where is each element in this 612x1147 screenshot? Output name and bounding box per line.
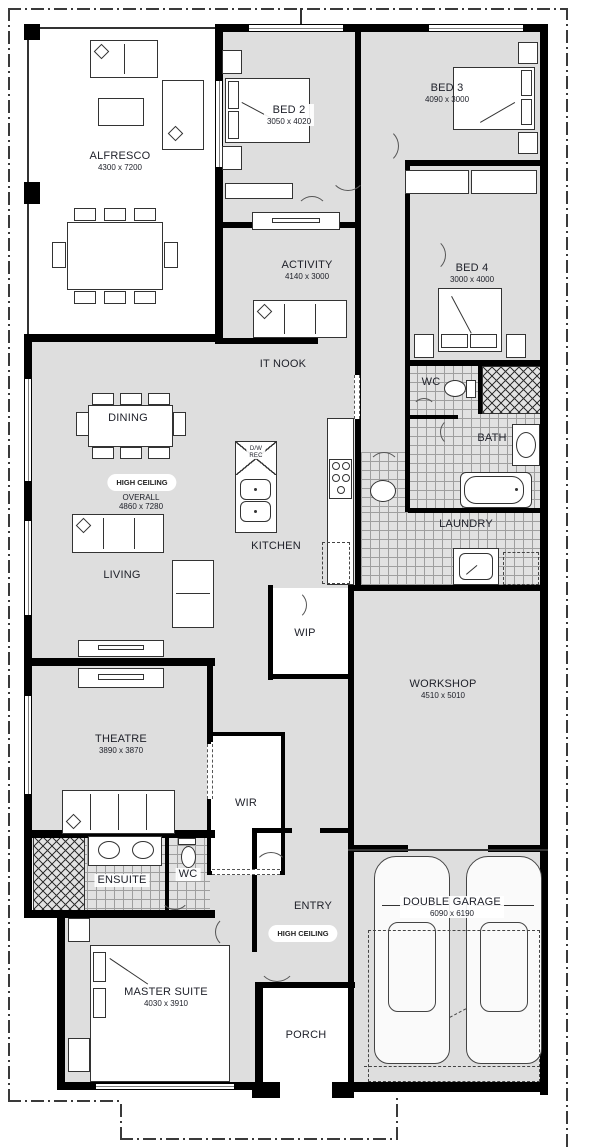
room-label-wip: WIP xyxy=(294,627,315,640)
high-ceiling-pill-entry: HIGH CEILING xyxy=(268,925,337,942)
boundary-right xyxy=(566,8,568,1147)
wall-bed4-bottom xyxy=(405,360,548,366)
boundary-left xyxy=(8,8,10,1102)
chair xyxy=(134,208,156,221)
room-label-activity: ACTIVITY4140 x 3000 xyxy=(281,259,332,281)
chair xyxy=(52,242,66,268)
window-theatre xyxy=(24,695,32,795)
pillow xyxy=(441,334,468,348)
wall-workshop-top xyxy=(348,585,548,591)
pillow xyxy=(470,334,497,348)
cabinet-slot xyxy=(272,218,320,223)
chair xyxy=(148,447,170,459)
bedside-table xyxy=(222,50,242,74)
room-label-kitchen: KITCHEN xyxy=(251,540,301,553)
boundary-bottom-1 xyxy=(8,1100,122,1102)
chair xyxy=(134,291,156,304)
room-label-bed3: BED 34090 x 3000 xyxy=(425,82,469,104)
sofa-line xyxy=(284,304,285,334)
door-arc-bath xyxy=(440,418,468,446)
wall-porch-top xyxy=(255,982,355,988)
fridge-recess xyxy=(322,542,350,584)
armchair-line xyxy=(176,593,210,594)
chair xyxy=(76,412,89,436)
bath-drain xyxy=(515,488,518,491)
alfresco-armchair xyxy=(162,80,204,150)
room-label-bed4: BED 43000 x 4000 xyxy=(450,262,494,284)
alfresco-sofa-line xyxy=(124,44,125,74)
room-label-entry: ENTRY xyxy=(294,900,332,913)
wall-garage-left xyxy=(348,585,354,1085)
bedside-table xyxy=(68,918,90,942)
living-armchair xyxy=(172,560,214,628)
wall-hall-right xyxy=(405,160,410,512)
burner xyxy=(332,462,340,470)
ensuite-basin xyxy=(132,841,154,859)
door-arc-activity xyxy=(330,155,366,191)
sofa-line xyxy=(146,794,147,830)
room-label-garage: DOUBLE GARAGE6090 x 6190 xyxy=(400,896,504,918)
window-bed2 xyxy=(248,24,344,32)
room-label-living: LIVING xyxy=(103,569,140,582)
room-label-wir: WIR xyxy=(235,797,257,810)
room-label-porch: PORCH xyxy=(286,1029,327,1042)
bedside-table xyxy=(222,146,242,170)
sink-drain xyxy=(254,488,257,491)
wall-porch-left xyxy=(255,982,263,1090)
chair xyxy=(74,291,96,304)
burner xyxy=(342,462,350,470)
boundary-bottom-3 xyxy=(120,1138,398,1140)
alfresco-post-1 xyxy=(24,24,40,40)
porch-post-right xyxy=(332,1082,354,1098)
wall-theatre-right xyxy=(207,658,213,742)
burner xyxy=(342,474,350,482)
hall-robe xyxy=(471,170,537,194)
door-arc-bed4 xyxy=(412,238,446,272)
wall-garage-bottom xyxy=(348,1082,548,1092)
chair xyxy=(92,393,114,405)
bed4-robe-hatch xyxy=(482,366,545,414)
window-living xyxy=(24,520,32,616)
shower-hatch xyxy=(33,836,85,914)
cabinet-slot xyxy=(98,645,144,650)
wall-entry-top-2 xyxy=(320,828,350,833)
sofa-line xyxy=(103,518,104,549)
sink-drain xyxy=(254,510,257,513)
opening-kitchen xyxy=(354,375,360,419)
sofa-line xyxy=(118,794,119,830)
alfresco-edge-top xyxy=(27,27,221,29)
wc1-toilet xyxy=(444,380,466,397)
room-label-master: MASTER SUITE4030 x 3910 xyxy=(121,986,211,1008)
room-label-bed2: BED 23050 x 4020 xyxy=(264,104,314,126)
porch-post-left xyxy=(252,1082,280,1098)
door-arc-bed3 xyxy=(363,128,399,164)
dishwasher-recess-label: D/W REC xyxy=(246,446,265,459)
door-arc-wip xyxy=(277,590,307,620)
room-label-workshop: WORKSHOP4510 x 5010 xyxy=(410,678,477,700)
pillow xyxy=(228,111,239,139)
wall-entry-top-1 xyxy=(252,828,292,833)
garage-setdown xyxy=(368,930,540,1082)
wc2-cistern xyxy=(178,838,196,845)
wall-wir-right xyxy=(281,732,285,875)
boundary-top xyxy=(8,8,568,10)
wall-right xyxy=(540,24,548,854)
chair xyxy=(104,291,126,304)
bath-basin xyxy=(516,432,536,458)
pillow xyxy=(93,988,106,1018)
door-arc-master xyxy=(215,916,247,948)
door-arc-hall xyxy=(254,852,288,886)
wc2-toilet xyxy=(181,846,196,868)
room-label-dining: DINING xyxy=(108,412,148,425)
burner xyxy=(332,474,340,482)
garage-top-line xyxy=(348,849,548,851)
room-label-laundry: LAUNDRY xyxy=(439,518,493,531)
bedside-table xyxy=(414,334,434,358)
wall-activity-bottom xyxy=(215,338,318,344)
hall-robe xyxy=(405,170,469,194)
pillow xyxy=(521,70,532,96)
chair xyxy=(164,242,178,268)
door-arc-ensuite xyxy=(160,880,190,910)
wall-robe-wc-divider xyxy=(478,364,482,414)
bedside-table xyxy=(518,42,538,64)
chair xyxy=(120,447,142,459)
door-arc-entry xyxy=(258,944,296,982)
room-label-itnook: IT NOOK xyxy=(260,358,306,371)
room-label-ensuite: ENSUITE xyxy=(94,874,149,887)
cabinet-slot xyxy=(98,674,144,680)
pillow xyxy=(93,952,106,982)
chair xyxy=(92,447,114,459)
chair xyxy=(173,412,186,436)
wall-ensuite-bottom xyxy=(24,910,215,918)
burner xyxy=(337,486,345,494)
chair xyxy=(120,393,142,405)
laundry-appliance-space xyxy=(503,552,539,585)
bedside-table xyxy=(518,132,538,154)
sofa-line xyxy=(315,304,316,334)
laundry-basin xyxy=(370,480,396,502)
wall-wir-top xyxy=(207,732,285,736)
door-arc-wc xyxy=(412,398,436,422)
wall-entry-left xyxy=(252,828,257,952)
room-label-wc2: WC xyxy=(176,868,201,881)
floor-plan: D/W REC xyxy=(0,0,612,1147)
wall-bath-bottom xyxy=(408,508,548,513)
ensuite-basin xyxy=(98,841,120,859)
wall-wip-bottom xyxy=(268,674,350,679)
alfresco-coffee-table xyxy=(98,98,144,126)
pillow xyxy=(228,81,239,109)
boundary-bottom-4 xyxy=(396,1095,398,1140)
wall-wip-left xyxy=(268,585,273,680)
chair xyxy=(74,208,96,221)
chair xyxy=(148,393,170,405)
room-label-bath: BATH xyxy=(477,432,506,445)
sofa-line xyxy=(90,794,91,830)
bed2-robe xyxy=(225,183,293,199)
boundary-bottom-2 xyxy=(120,1100,122,1140)
opening-theatre xyxy=(207,744,213,799)
wall-master-left xyxy=(57,912,65,1090)
room-label-alfresco: ALFRESCO4300 x 7200 xyxy=(90,150,151,172)
window-dining xyxy=(24,378,32,482)
alfresco-post-2 xyxy=(24,182,40,204)
window-master xyxy=(95,1083,235,1090)
room-label-wc1: WC xyxy=(422,376,441,389)
wall-bed3-bottom xyxy=(405,160,548,166)
master-bed xyxy=(90,945,230,1082)
high-ceiling-pill-living: HIGH CEILING xyxy=(107,474,176,491)
window-bed3 xyxy=(428,24,524,32)
pillow xyxy=(521,99,532,125)
wall-theatre-top xyxy=(24,658,215,666)
sofa-line xyxy=(134,518,135,549)
wall-greatroom-top xyxy=(24,334,221,342)
chair xyxy=(104,208,126,221)
overall-dims-label: OVERALL4860 x 7280 xyxy=(119,493,163,511)
room-label-theatre: THEATRE3890 x 3870 xyxy=(95,733,147,755)
bedside-table xyxy=(68,1038,90,1072)
alfresco-table xyxy=(67,222,163,290)
bedside-table xyxy=(506,334,526,358)
wall-ensuite-left xyxy=(24,830,32,918)
wc1-cistern xyxy=(466,380,476,398)
